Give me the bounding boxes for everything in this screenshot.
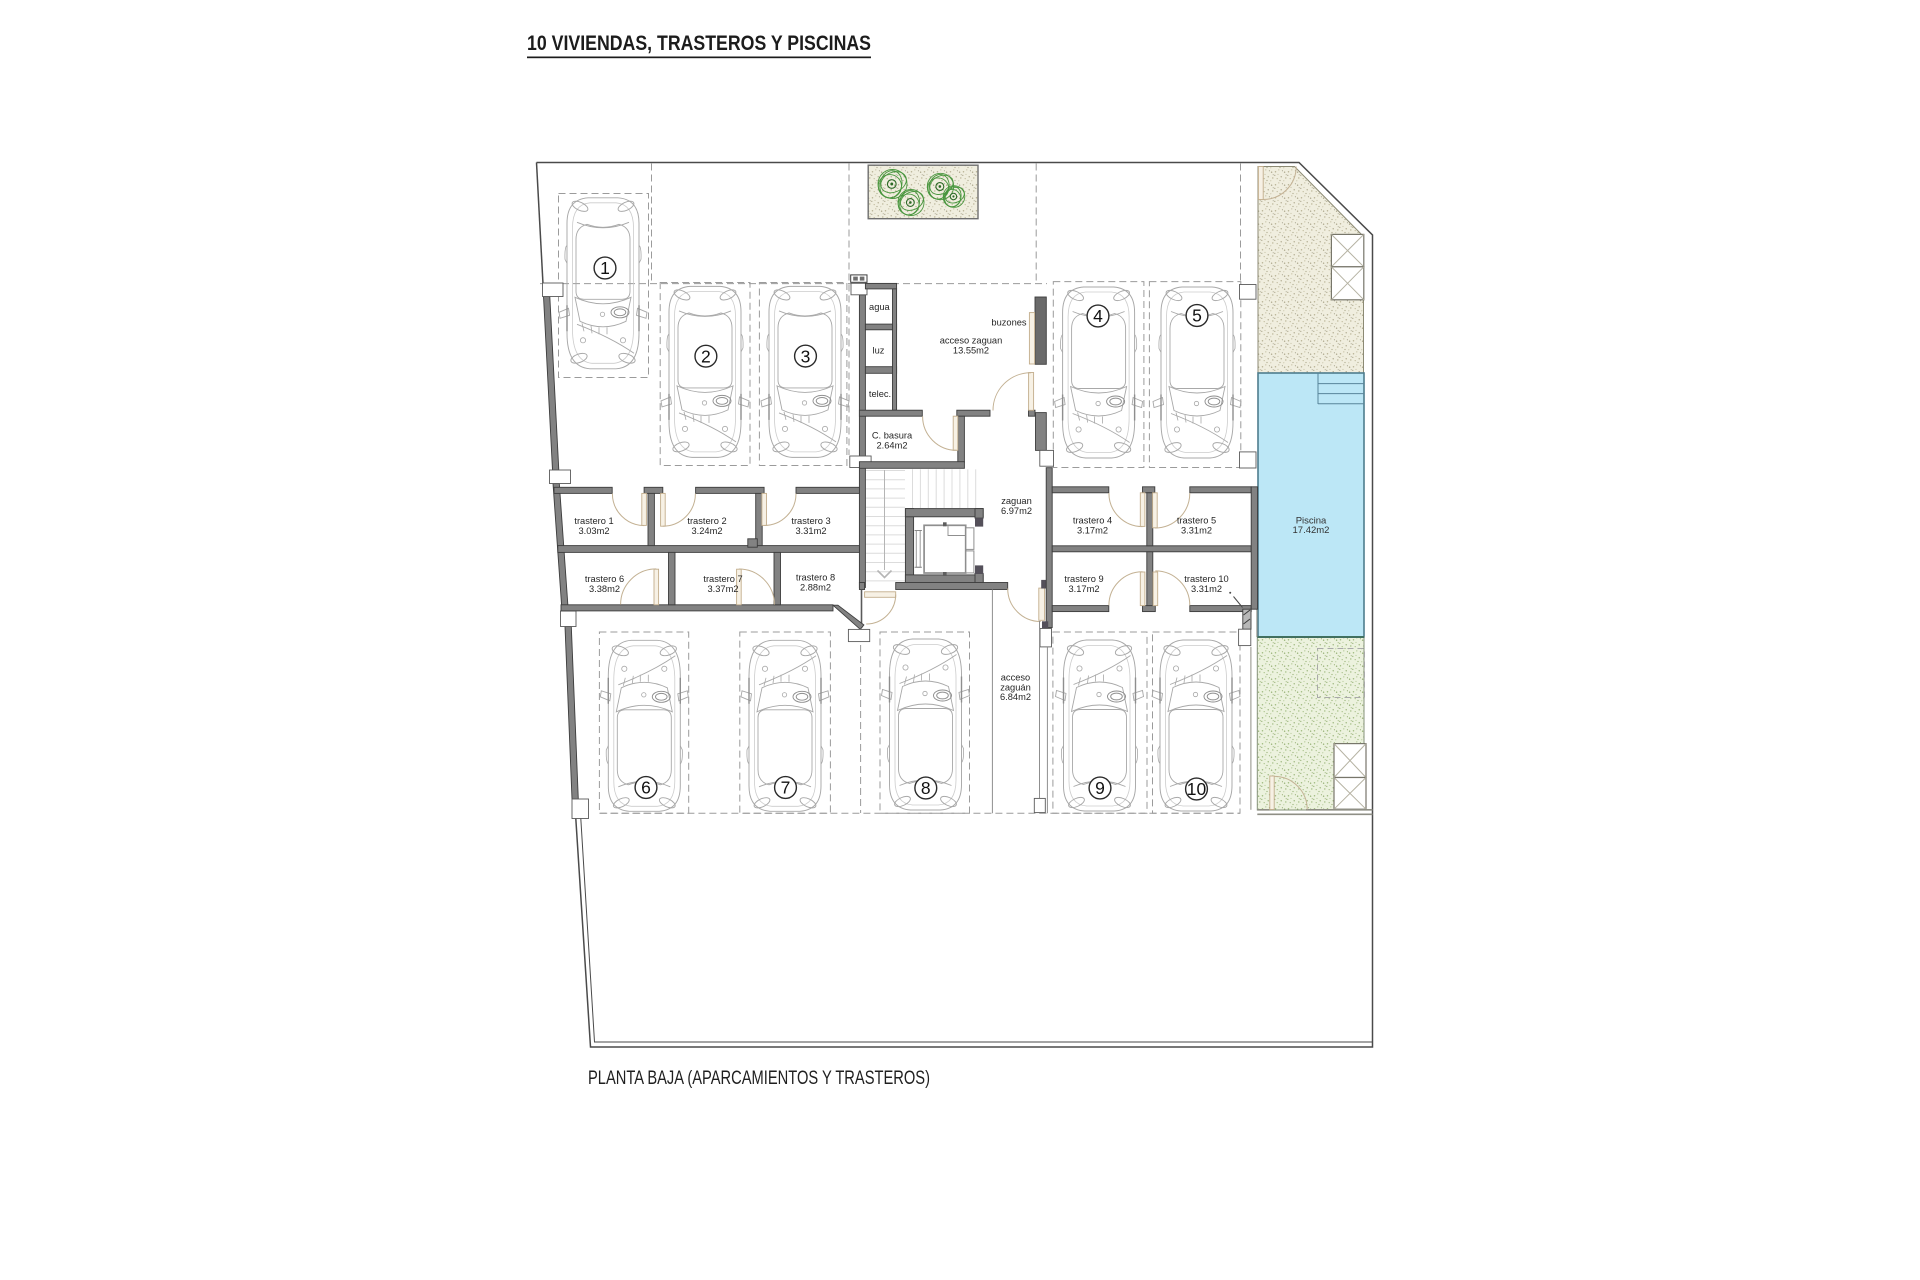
svg-text:Piscina17.42m2: Piscina17.42m2 (1293, 515, 1330, 536)
svg-text:PLANTA BAJA (APARCAMIENTOS Y T: PLANTA BAJA (APARCAMIENTOS Y TRASTEROS) (588, 1067, 930, 1089)
svg-text:agua: agua (869, 302, 891, 312)
svg-text:trastero 23.24m2: trastero 23.24m2 (687, 516, 726, 536)
svg-text:trastero 93.17m2: trastero 93.17m2 (1064, 574, 1103, 594)
svg-text:5: 5 (1192, 306, 1202, 326)
svg-text:2: 2 (701, 346, 711, 366)
svg-text:trastero 43.17m2: trastero 43.17m2 (1073, 516, 1112, 536)
svg-text:trastero 82.88m2: trastero 82.88m2 (796, 573, 835, 593)
svg-text:1: 1 (600, 258, 610, 278)
svg-text:8: 8 (921, 778, 931, 798)
svg-text:telec.: telec. (869, 389, 891, 399)
svg-text:6: 6 (641, 778, 651, 798)
svg-text:10: 10 (1187, 779, 1207, 799)
svg-text:accesozaguán6.84m2: accesozaguán6.84m2 (1000, 673, 1031, 703)
svg-text:luz: luz (873, 346, 885, 356)
svg-text:zaguan6.97m2: zaguan6.97m2 (1001, 496, 1032, 516)
svg-text:3: 3 (801, 346, 811, 366)
svg-text:trastero 73.37m2: trastero 73.37m2 (703, 574, 742, 594)
svg-text:7: 7 (781, 778, 791, 798)
svg-text:trastero 13.03m2: trastero 13.03m2 (574, 516, 613, 536)
svg-text:trastero 33.31m2: trastero 33.31m2 (791, 516, 830, 536)
svg-text:9: 9 (1095, 778, 1105, 798)
svg-text:C. basura2.64m2: C. basura2.64m2 (872, 431, 913, 451)
svg-text:trastero 63.38m2: trastero 63.38m2 (585, 574, 624, 594)
svg-text:4: 4 (1093, 306, 1103, 326)
svg-text:10 VIVIENDAS, TRASTEROS Y PISC: 10 VIVIENDAS, TRASTEROS Y PISCINAS (527, 31, 871, 55)
svg-text:buzones: buzones (991, 318, 1027, 328)
svg-text:trastero 53.31m2: trastero 53.31m2 (1177, 516, 1216, 536)
